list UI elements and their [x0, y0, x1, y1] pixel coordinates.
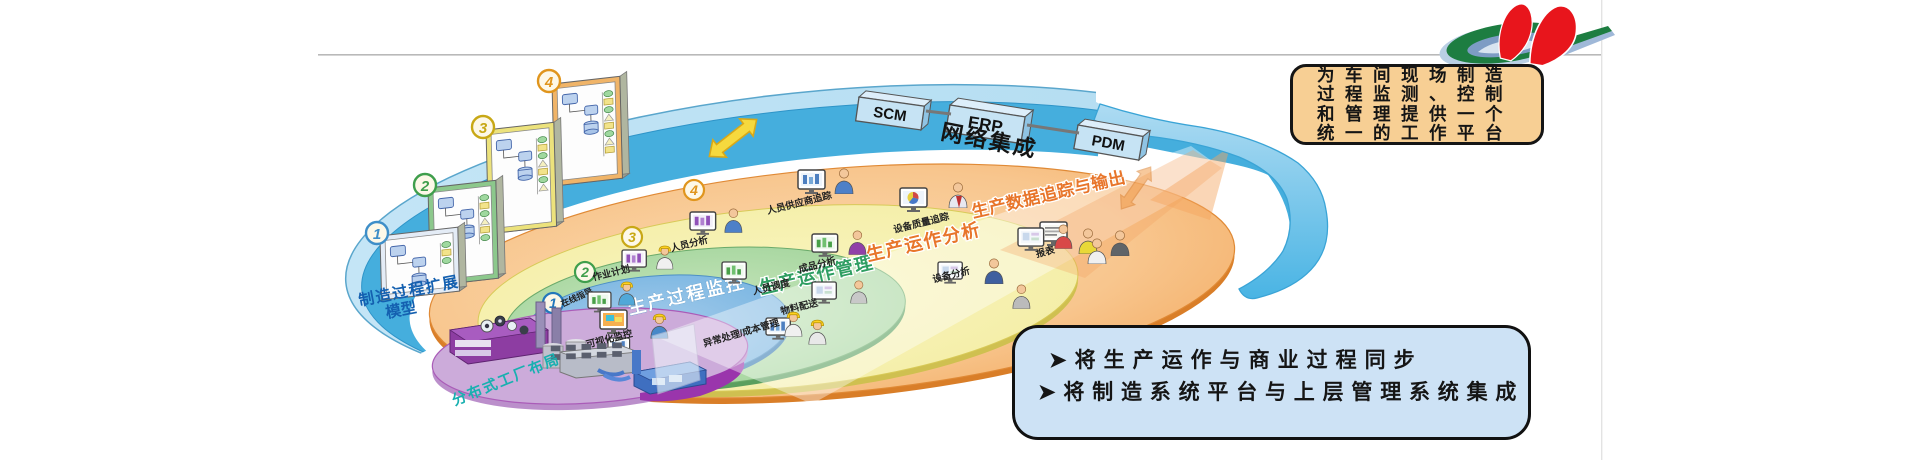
- svg-text:3: 3: [479, 120, 488, 137]
- svg-text:4: 4: [544, 74, 554, 91]
- svg-text:3: 3: [628, 229, 636, 245]
- svg-text:1: 1: [373, 226, 381, 243]
- svg-text:2: 2: [420, 178, 430, 195]
- svg-text:2: 2: [580, 264, 589, 280]
- svg-text:4: 4: [689, 182, 698, 198]
